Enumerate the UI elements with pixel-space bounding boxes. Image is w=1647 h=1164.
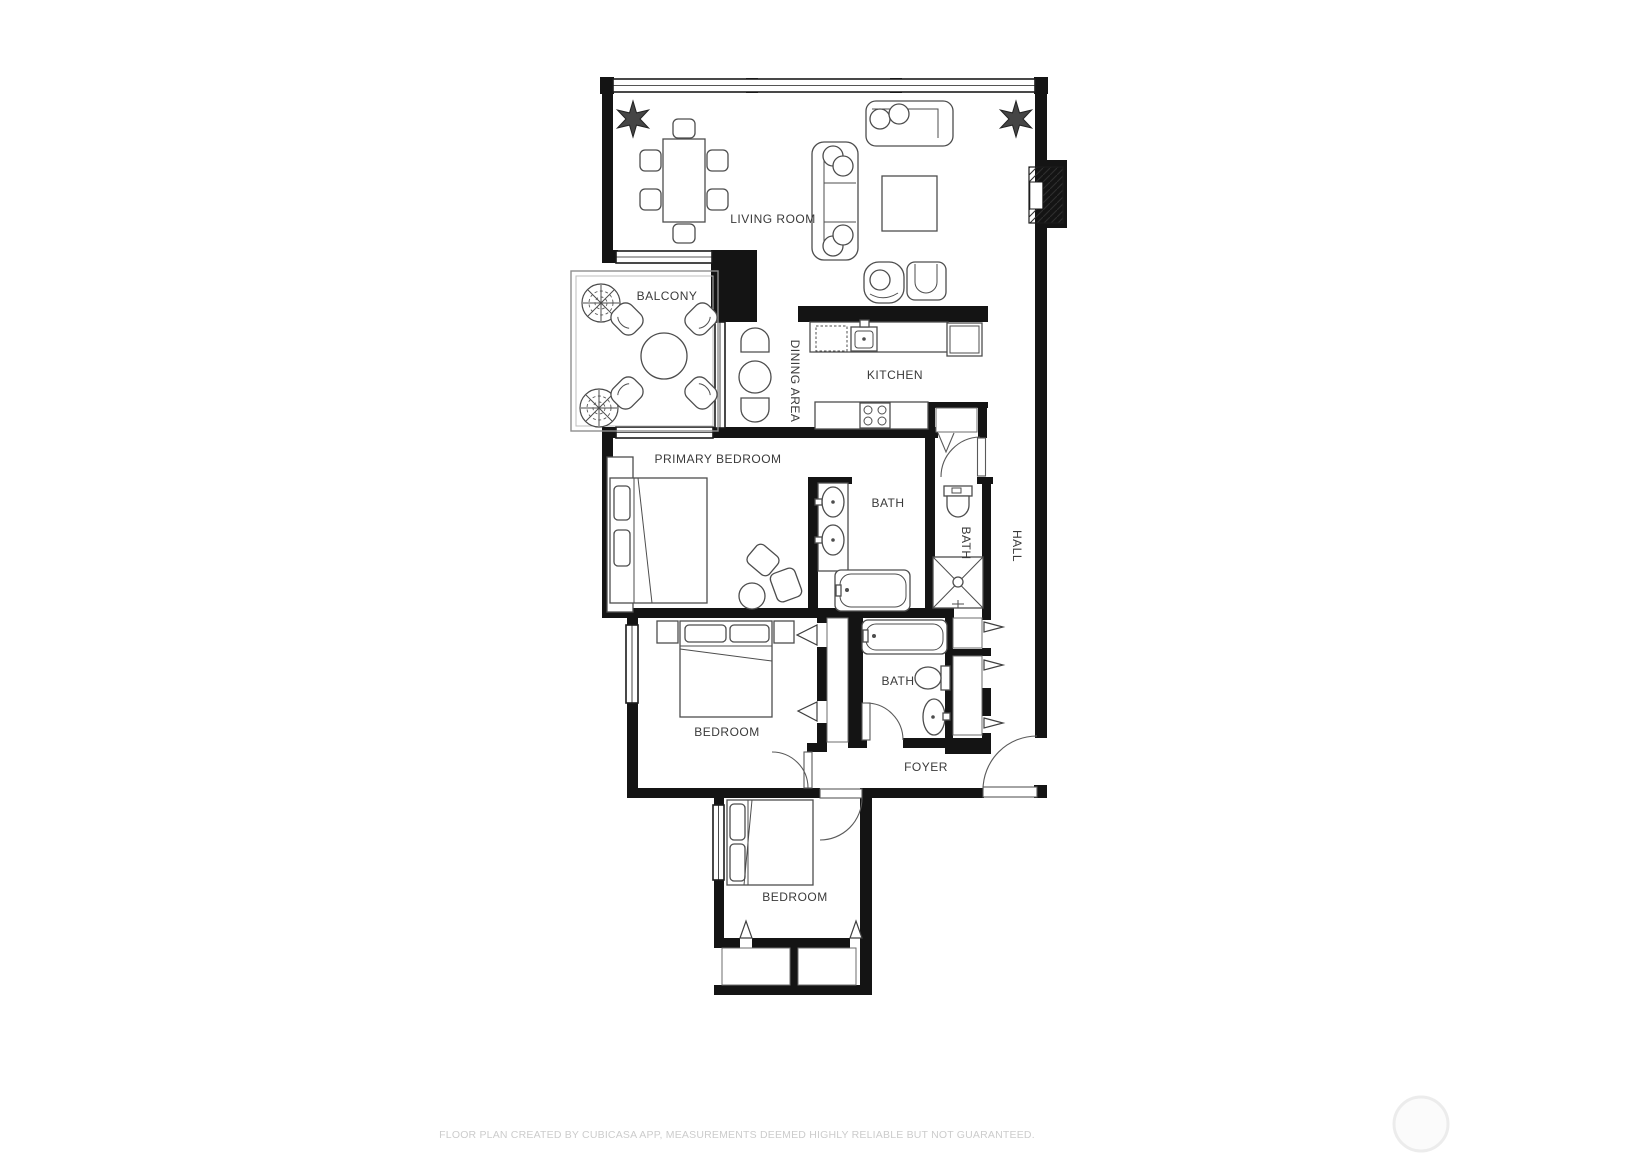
stove [860, 403, 890, 428]
room-label-bath-main: BATH [871, 496, 904, 510]
room-label-bedroom-lower: BEDROOM [762, 890, 828, 904]
floor-plan-drawing: LIVING ROOM BALCONY DINING AREA KITCHEN … [0, 0, 1647, 1164]
door-bedroom-middle [772, 752, 812, 788]
door-hall-closet-bifold [938, 433, 986, 477]
disclaimer-text: FLOOR PLAN CREATED BY CUBICASA APP, MEAS… [439, 1129, 1035, 1141]
bed [680, 621, 772, 717]
patio-table-set [607, 299, 721, 413]
window-balcony-slider [616, 251, 712, 263]
room-label-bath-lower: BATH [881, 674, 914, 688]
room-label-bedroom-middle: BEDROOM [694, 725, 760, 739]
fridge [947, 323, 982, 356]
toilet [915, 666, 950, 690]
window-dining-area [715, 322, 725, 428]
room-label-foyer: FOYER [904, 760, 948, 774]
bedroom-middle-furniture [657, 621, 794, 717]
plant-icon [617, 101, 648, 137]
watermark-logo [1394, 1097, 1448, 1151]
coffee-table [882, 176, 937, 231]
bed [727, 800, 813, 885]
dining-area-furniture [739, 328, 771, 422]
window-band-top [613, 79, 1035, 92]
room-label-hall: HALL [1010, 530, 1024, 562]
door-bath-lower [862, 703, 903, 740]
primary-bedroom-furniture [607, 457, 803, 612]
room-label-balcony: BALCONY [637, 289, 698, 303]
bed [610, 478, 707, 603]
side-table [739, 583, 765, 609]
balcony-furniture [580, 284, 721, 427]
living-room-furniture [617, 101, 1031, 303]
floor-plan-page: LIVING ROOM BALCONY DINING AREA KITCHEN … [0, 0, 1647, 1164]
sofa [812, 142, 858, 260]
shower [933, 557, 983, 608]
dining-table-set [640, 119, 728, 243]
door-bedroom-lower [820, 789, 862, 840]
bathtub [862, 620, 947, 654]
door-entry [983, 736, 1037, 797]
room-label-bath-small: BATH [959, 526, 973, 559]
loveseat [866, 101, 953, 146]
nightstand [657, 621, 678, 643]
window-bedroom-lower [713, 805, 724, 880]
room-label-primary-bedroom: PRIMARY BEDROOM [654, 452, 781, 466]
room-label-dining-area: DINING AREA [788, 340, 802, 423]
room-label-living-room: LIVING ROOM [730, 212, 816, 226]
nightstand [774, 621, 794, 643]
room-label-kitchen: KITCHEN [867, 368, 923, 382]
window-primary-bedroom [616, 427, 713, 438]
armchair [864, 262, 904, 303]
fireplace [1029, 160, 1067, 228]
bath-small-fixtures [933, 486, 983, 608]
armchair [907, 262, 946, 300]
pantry-closet [936, 408, 977, 432]
plant-icon [1000, 101, 1031, 137]
toilet [944, 486, 972, 517]
bathtub [835, 570, 910, 611]
bedroom-lower-furniture [727, 800, 813, 885]
window-bedroom-middle [626, 625, 638, 703]
chair [769, 566, 804, 603]
